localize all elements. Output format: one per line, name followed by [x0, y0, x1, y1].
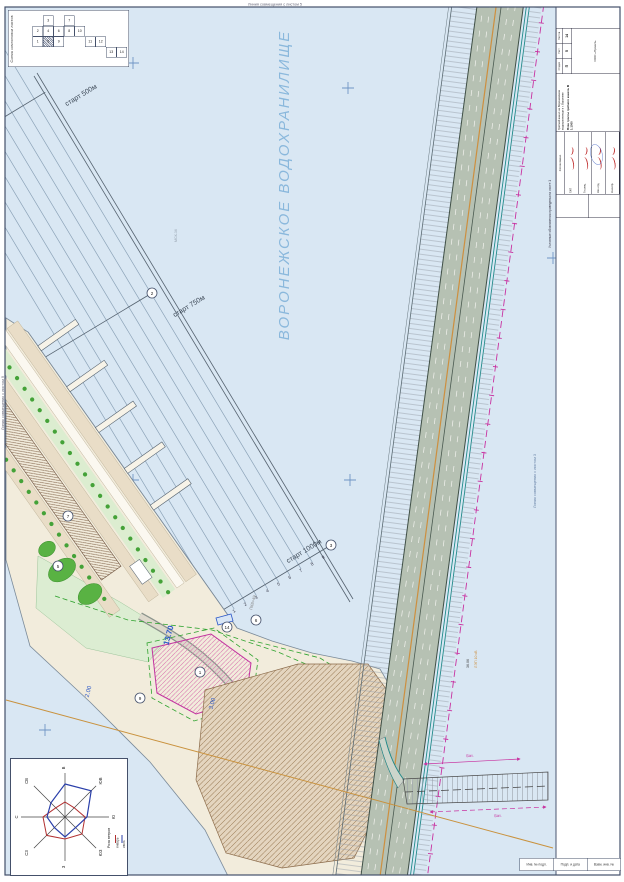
svg-text:З: З: [61, 865, 66, 868]
scheme-sheet: 14: [117, 47, 128, 58]
svg-text:ЮЗ: ЮЗ: [98, 849, 103, 856]
svg-text:СВ: СВ: [24, 778, 29, 784]
signature-mark: [568, 147, 574, 155]
side-road-label-a: Бат.: [466, 753, 473, 758]
agree-label: Согласовано: [557, 132, 565, 194]
side-road-label-b: Бат.: [494, 813, 501, 818]
svg-text:1: 1: [199, 670, 202, 675]
signature-mark: [581, 157, 589, 171]
svg-text:7: 7: [67, 514, 70, 519]
svg-text:В: В: [61, 766, 66, 769]
sheet-layout-scheme: Схема компоновки листов 3 7 2 4 6 8 10 1…: [8, 10, 128, 66]
signature-mark: [609, 147, 615, 155]
scheme-sheet: 4: [43, 26, 54, 37]
scheme-sheet: 9: [54, 37, 65, 48]
scheme-sheet: 13: [106, 47, 117, 58]
match-line-left: Линия совмещения с листом 9: [1, 376, 5, 430]
match-line-top: Линия совмещения с листом 5: [248, 3, 302, 7]
wind-legend-jul: июль: [122, 840, 126, 848]
svg-text:9: 9: [139, 696, 142, 701]
wind-rose-box: В ЮВ Ю ЮЗ З СЗ С СВ Роза ветров январь и…: [10, 758, 128, 876]
scheme-sheet: 11: [85, 37, 96, 48]
signature-mark: [582, 147, 588, 155]
organization-name: ООО «Проект»: [572, 29, 620, 74]
approval-row-label: Гл.спец.: [583, 172, 586, 194]
approval-row-label: Нач.отд.: [597, 172, 600, 194]
wind-rose-title: Роза ветров: [107, 828, 111, 848]
coord-system-label: МСК-36: [174, 229, 178, 242]
frame-strip-cell: Подп. и дата: [553, 858, 587, 871]
frame-strip-cell: Инв. № подл.: [520, 858, 554, 871]
stage-value: П: [563, 59, 572, 74]
scheme-sheet: 6: [54, 26, 65, 37]
scheme-sheet: 7: [64, 16, 75, 27]
approval-table: Согласовано ГИП Гл.спец. Нач.отд. Н.конт…: [557, 132, 620, 195]
sheets-value: 14: [563, 29, 572, 44]
approval-row-label: Н.контр.: [611, 172, 614, 194]
scheme-sheet: 2: [33, 26, 44, 37]
drawing-title: План трассы гребного канала. М 1:1000: [567, 76, 574, 131]
scheme-sheet: 8: [64, 26, 75, 37]
frame-strip: Инв. № подл. Подп. и дата Взам. инв. №: [520, 858, 621, 871]
title-block-side-cells: [557, 194, 620, 218]
plan-canvas: ВОРОНЕЖСКОЕ ВОДОХРАНИЛИЩЕ старт 500м: [0, 0, 624, 882]
svg-text:2: 2: [151, 291, 154, 296]
sheet-value: 5: [563, 44, 572, 59]
signature-mark: [567, 157, 575, 171]
power-line-label-a: 36.06: [466, 659, 470, 668]
project-name: Гребной канал на Воронежском водохранили…: [558, 76, 565, 131]
svg-text:6: 6: [255, 618, 258, 623]
scheme-sheet: 12: [96, 37, 107, 48]
scheme-title: Схема компоновки листов: [11, 15, 15, 62]
title-block-main: Гребной канал на Воронежском водохранили…: [557, 29, 620, 132]
scheme-sheet: 3: [43, 16, 54, 27]
signature-mark: [608, 157, 616, 171]
svg-text:3: 3: [330, 543, 333, 548]
drawing-sheet: ВОРОНЕЖСКОЕ ВОДОХРАНИЛИЩЕ старт 500м: [0, 0, 624, 882]
svg-text:5: 5: [57, 564, 60, 569]
wind-legend-jan: январь: [116, 837, 120, 848]
svg-text:14: 14: [224, 625, 230, 630]
svg-text:С: С: [14, 815, 19, 818]
water-name-label: ВОРОНЕЖСКОЕ ВОДОХРАНИЛИЩЕ: [276, 30, 293, 340]
title-block: Согласовано ГИП Гл.спец. Нач.отд. Н.конт…: [556, 28, 620, 218]
scheme-sheet: 1: [33, 37, 44, 48]
wind-rose-axes: [21, 773, 109, 861]
svg-text:ЮВ: ЮВ: [98, 777, 103, 784]
approval-row-label: ГИП: [570, 172, 573, 194]
frame-strip-cell: Взам. инв. №: [587, 858, 621, 871]
svg-text:СЗ: СЗ: [24, 850, 29, 856]
power-line-label-b: ЛЭП 10 кВ: [474, 650, 478, 668]
legend-note: Условные обозначения приведены на листе …: [548, 180, 552, 248]
scheme-sheet-current: 5: [43, 37, 54, 48]
match-line-inner: Линия совмещения с листом 3: [533, 454, 537, 508]
svg-text:Ю: Ю: [111, 814, 116, 819]
scheme-sheet: 10: [75, 26, 86, 37]
wind-rose-series-jul: [47, 784, 91, 837]
